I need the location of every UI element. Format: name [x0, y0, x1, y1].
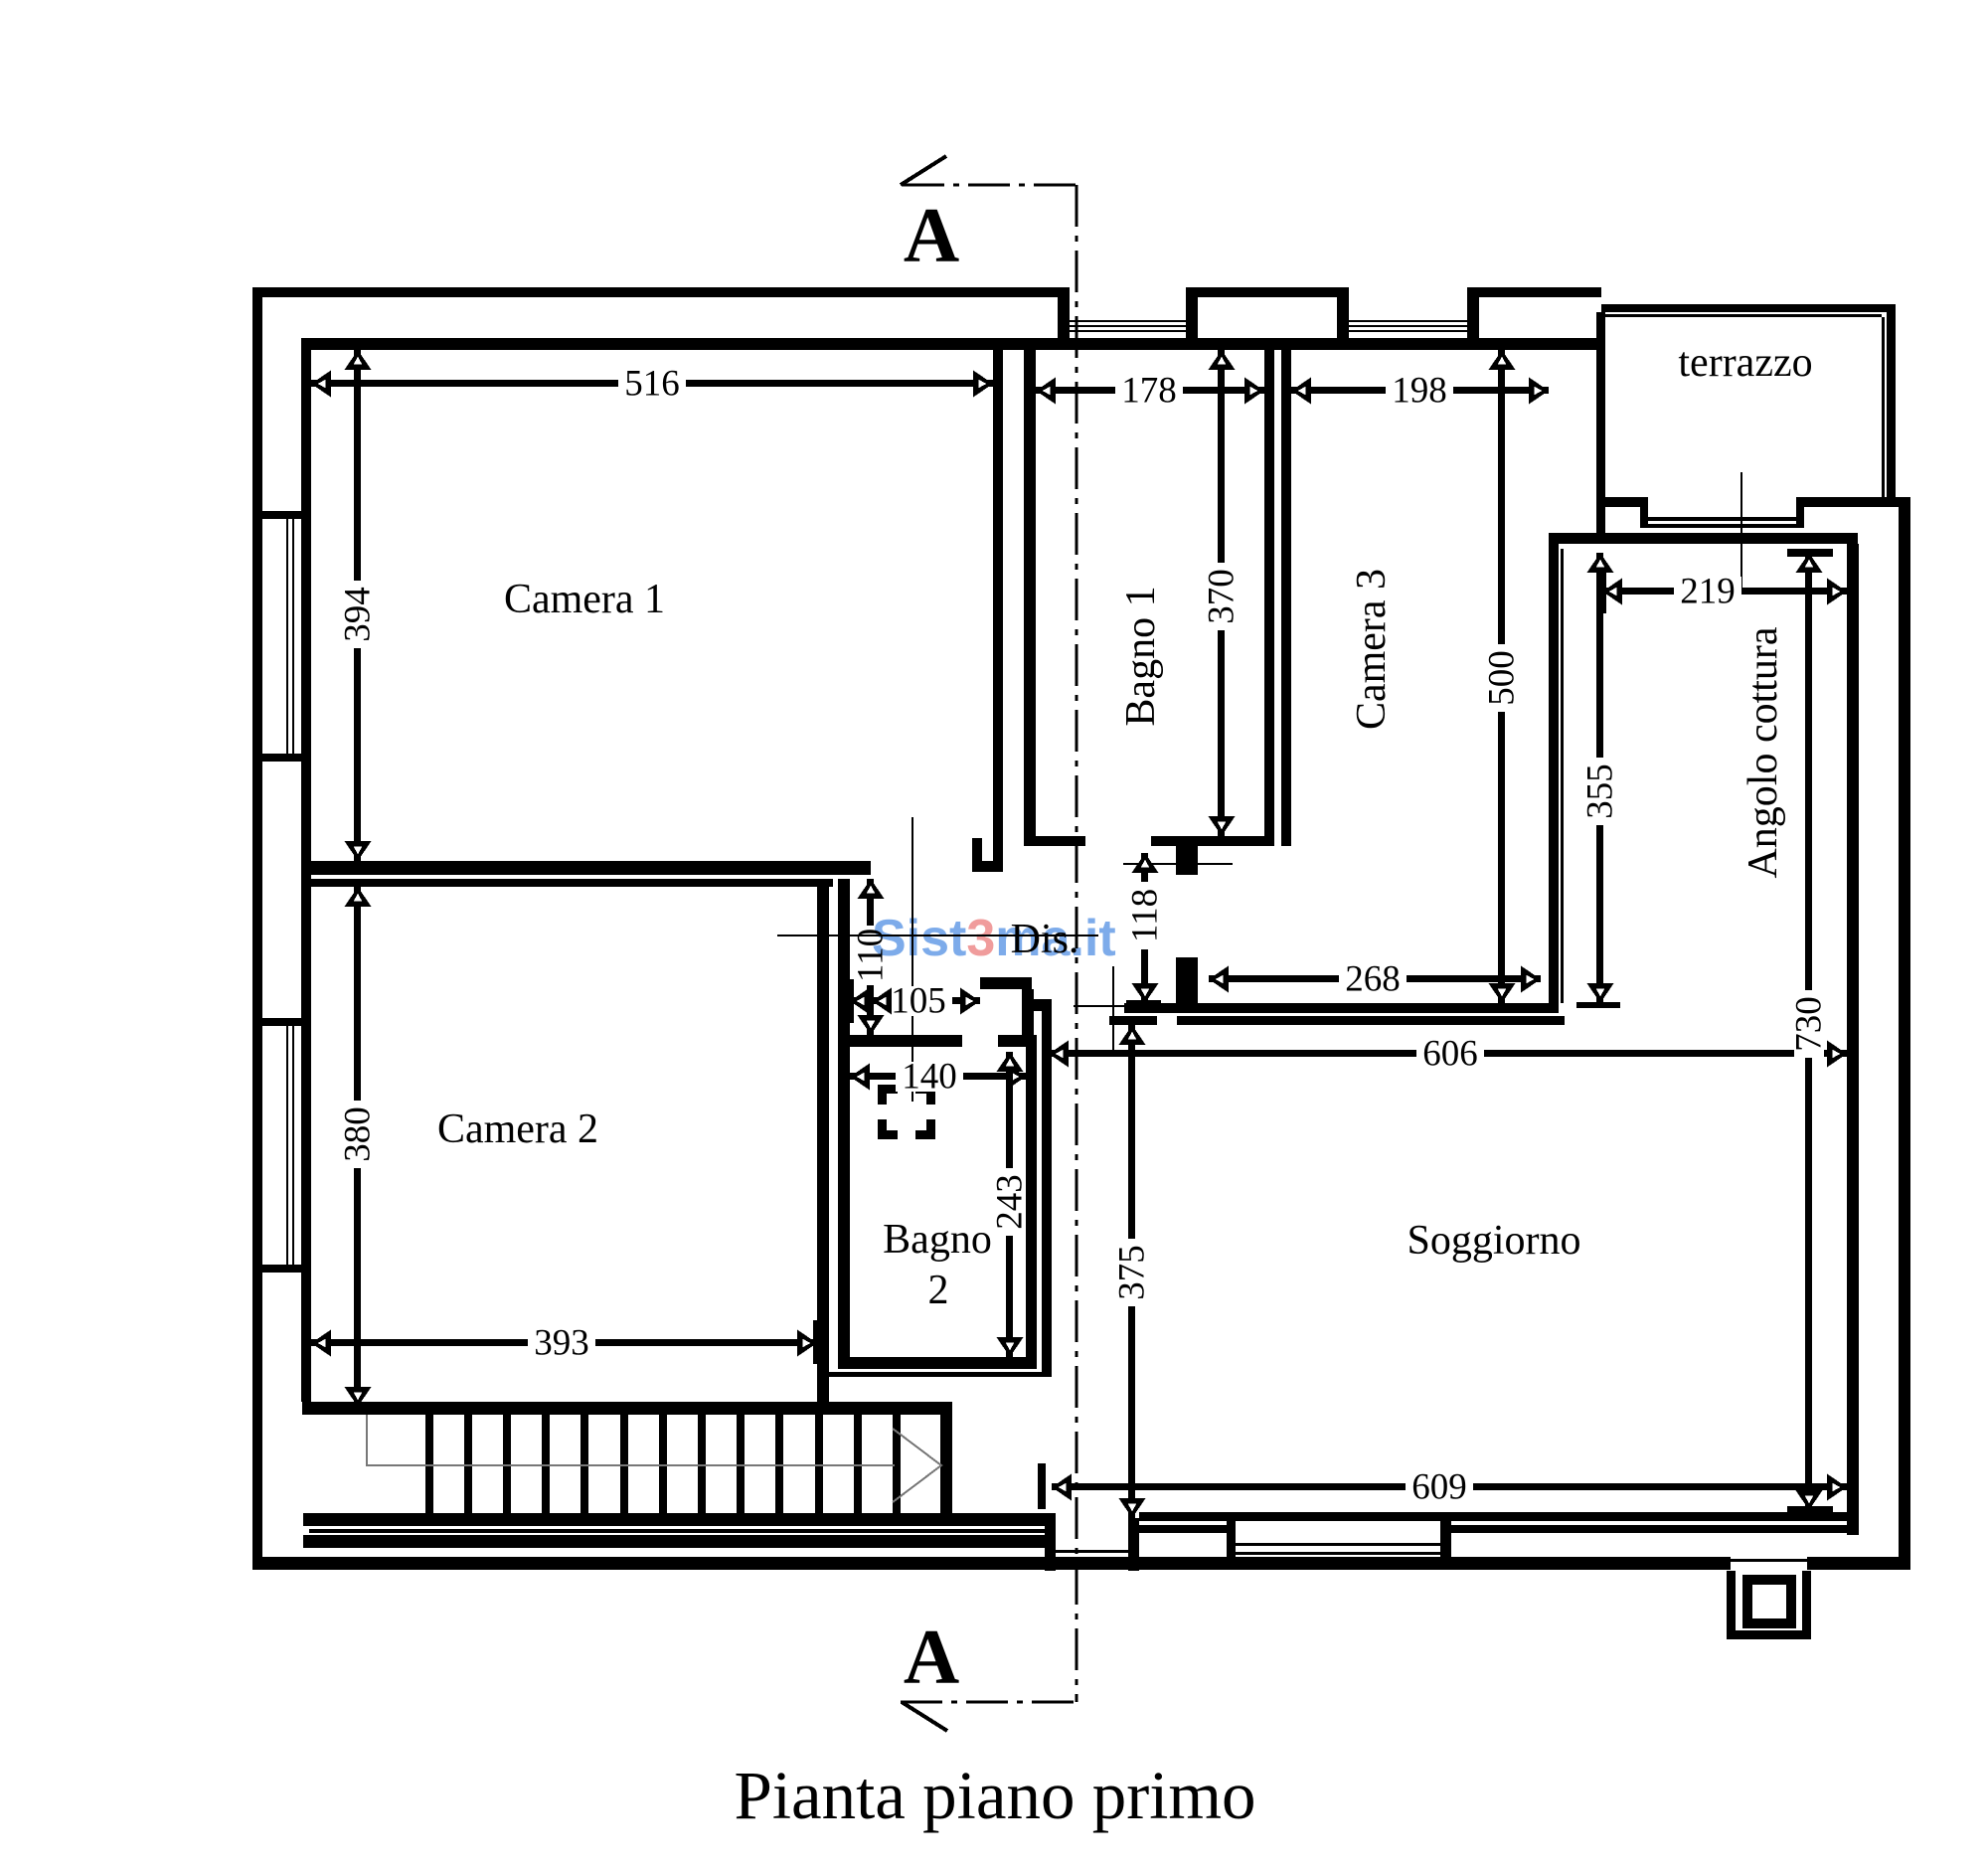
svg-text:Soggiorno: Soggiorno	[1407, 1218, 1580, 1264]
svg-text:393: 393	[534, 1323, 589, 1364]
svg-text:Sist3ma.it: Sist3ma.it	[872, 910, 1116, 967]
svg-text:219: 219	[1680, 572, 1736, 612]
svg-text:243: 243	[990, 1174, 1031, 1230]
svg-text:730: 730	[1789, 996, 1830, 1052]
svg-text:375: 375	[1112, 1245, 1153, 1300]
svg-text:A: A	[904, 192, 959, 278]
svg-text:394: 394	[338, 587, 379, 642]
svg-text:609: 609	[1411, 1467, 1467, 1508]
svg-text:355: 355	[1580, 764, 1621, 819]
svg-text:140: 140	[902, 1057, 957, 1098]
svg-text:Angolo cottura: Angolo cottura	[1740, 626, 1786, 878]
svg-text:500: 500	[1482, 650, 1523, 706]
svg-text:268: 268	[1345, 959, 1401, 1000]
svg-text:A: A	[904, 1614, 959, 1700]
svg-text:178: 178	[1121, 371, 1177, 412]
svg-text:118: 118	[1125, 889, 1166, 942]
svg-text:Camera 1: Camera 1	[504, 577, 665, 622]
svg-text:terrazzo: terrazzo	[1678, 340, 1812, 386]
svg-text:370: 370	[1202, 569, 1242, 624]
svg-text:380: 380	[338, 1106, 379, 1162]
svg-text:2: 2	[928, 1268, 949, 1313]
svg-text:110: 110	[851, 929, 892, 982]
svg-text:516: 516	[624, 364, 680, 405]
svg-text:Bagno 1: Bagno 1	[1118, 586, 1164, 726]
svg-text:Bagno: Bagno	[883, 1217, 992, 1263]
svg-text:198: 198	[1392, 371, 1447, 412]
svg-text:Camera 2: Camera 2	[437, 1106, 598, 1152]
svg-text:Dis.: Dis.	[1011, 917, 1079, 962]
svg-text:105: 105	[891, 981, 946, 1022]
svg-text:Camera 3: Camera 3	[1349, 569, 1395, 730]
svg-text:Pianta piano primo: Pianta piano primo	[734, 1758, 1255, 1833]
svg-text:606: 606	[1422, 1034, 1478, 1075]
